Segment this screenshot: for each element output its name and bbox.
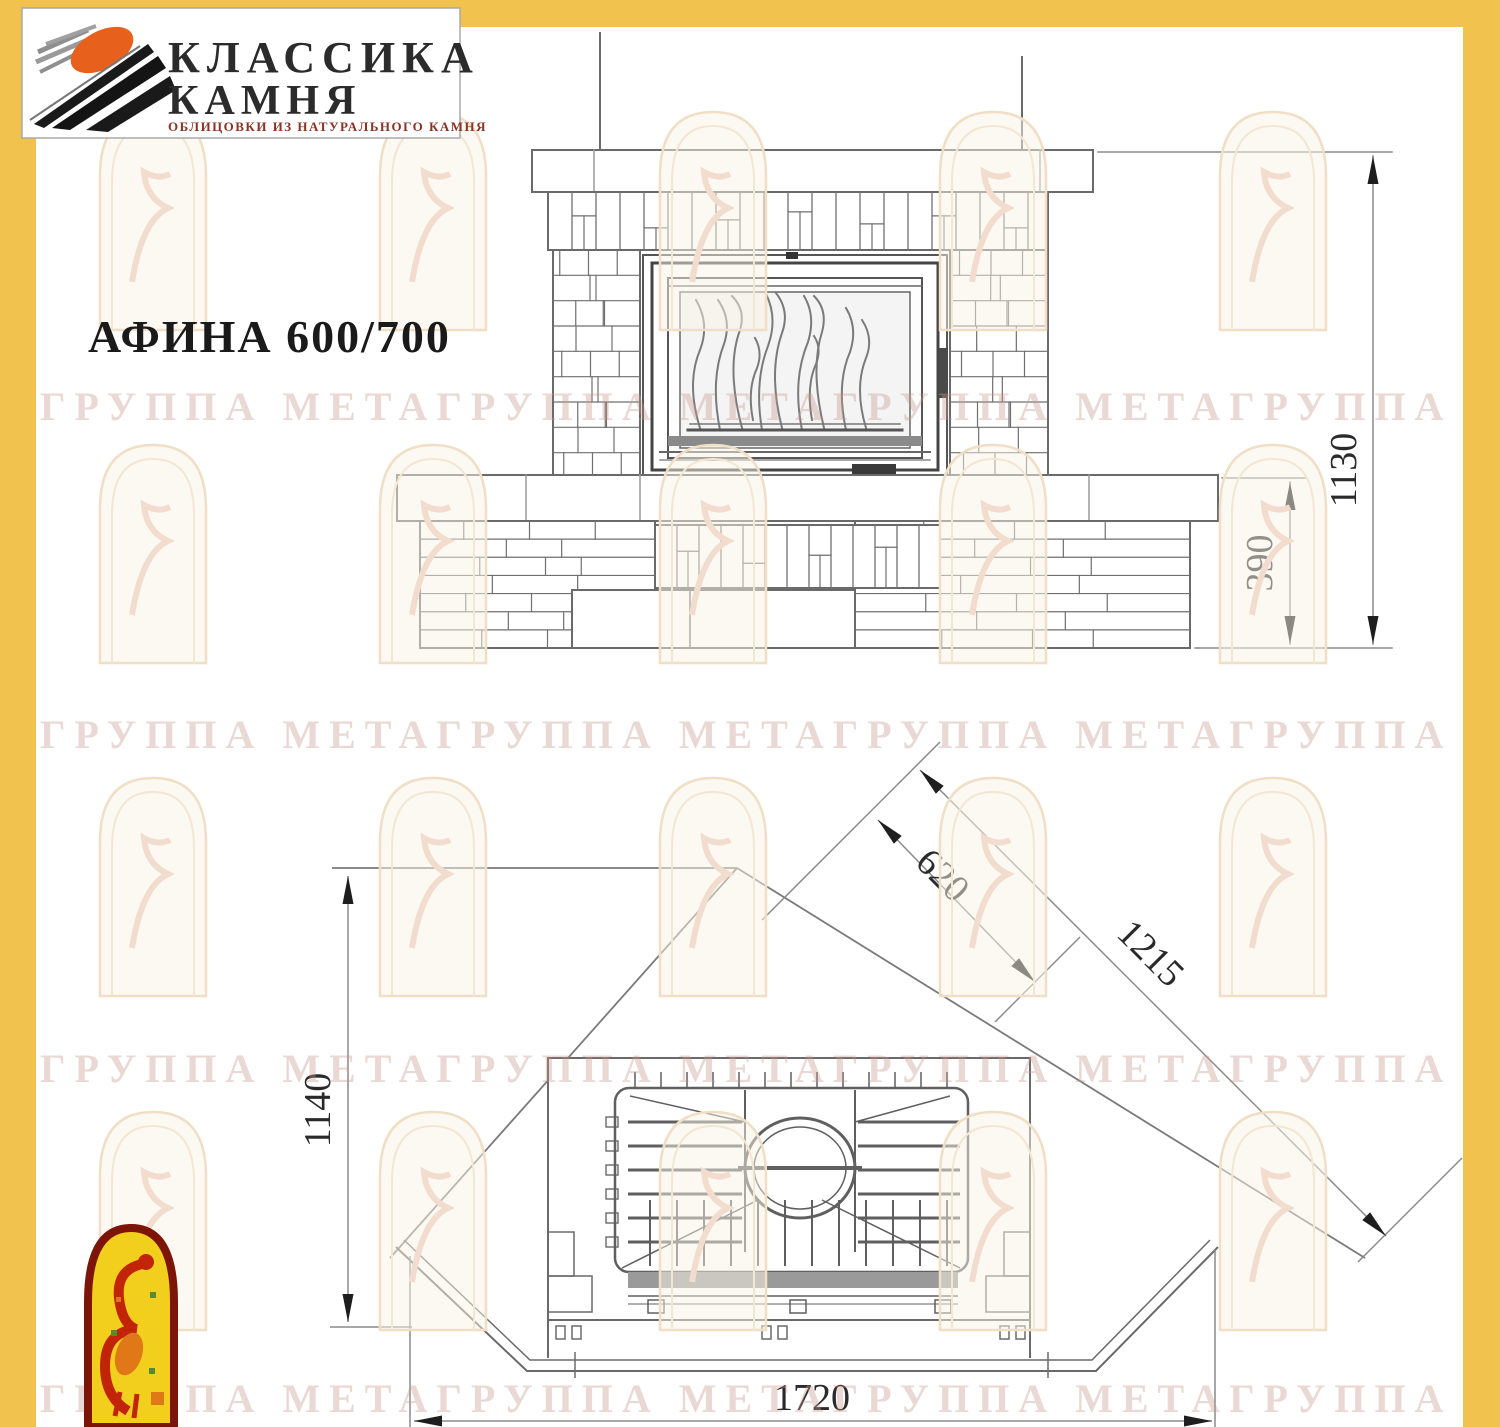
frame-right xyxy=(1463,0,1500,1427)
watermark-text: ГРУППА МЕТАГРУППА МЕТАГРУППА МЕТАГРУППА … xyxy=(40,384,1500,429)
firebox-brand-label xyxy=(852,464,896,474)
watermark-text: ГРУППА МЕТАГРУППА МЕТАГРУППА МЕТАГРУППА … xyxy=(40,1046,1500,1091)
fireplace-technical-drawing: 1130 390 xyxy=(0,0,1500,1427)
dim-front-total-height: 1130 xyxy=(1323,433,1365,508)
hearth-shelf xyxy=(397,475,1218,521)
firebird-emblem xyxy=(88,1228,174,1427)
model-title: АФИНА 600/700 xyxy=(88,311,451,362)
brand-name-line1: КЛАССИКА xyxy=(168,33,480,82)
watermark-text: ГРУППА МЕТАГРУППА МЕТАГРУППА МЕТАГРУППА … xyxy=(40,712,1500,757)
firebox-top-latch xyxy=(786,252,798,259)
frame-left xyxy=(0,0,36,1427)
brand-caption: ОБЛИЦОВКИ ИЗ НАТУРАЛЬНОГО КАМНЯ xyxy=(168,119,487,134)
brand-name-line2: КАМНЯ xyxy=(168,78,361,124)
watermark-text: ГРУППА МЕТАГРУППА МЕТАГРУППА МЕТАГРУППА … xyxy=(40,1376,1500,1421)
dim-plan-side-outer: 1215 xyxy=(1109,912,1192,995)
drawing-sheet: 1130 390 xyxy=(0,0,1500,1427)
brand-logo: КЛАССИКА КАМНЯ ОБЛИЦОВКИ ИЗ НАТУРАЛЬНОГО… xyxy=(22,8,487,138)
